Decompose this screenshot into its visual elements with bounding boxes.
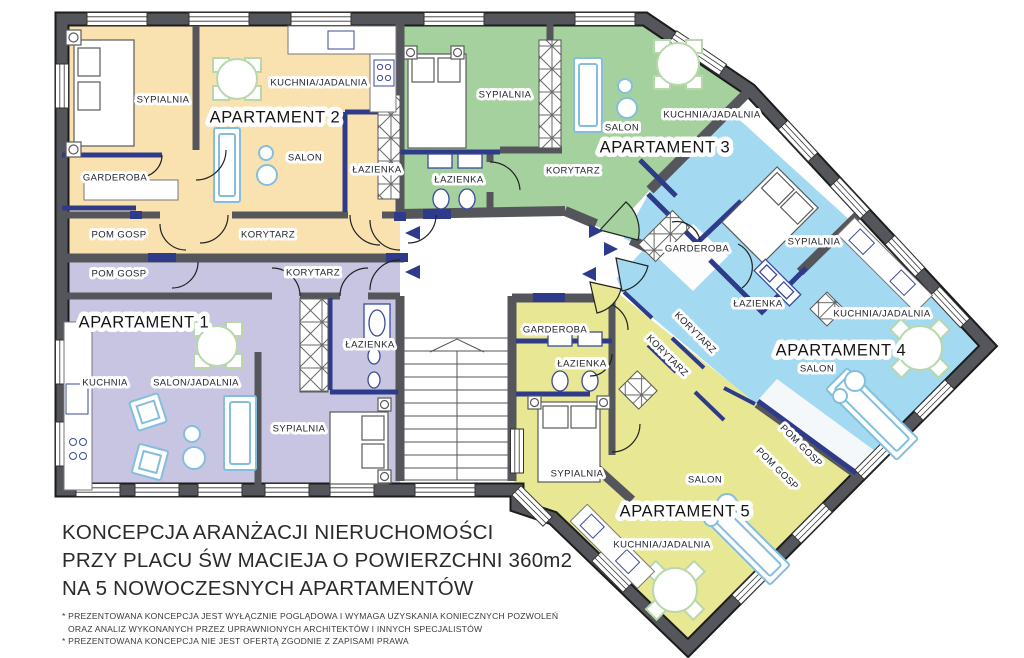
room-label: ŁAZIENKA xyxy=(733,299,782,310)
room-label: KUCHNIA/JADALNIA xyxy=(663,110,760,121)
room-label: POM GOSP xyxy=(92,230,147,241)
apt3-bed xyxy=(404,46,466,148)
plan-title-line-3: NA 5 NOWOCZESNYCH APARTAMENTÓW xyxy=(62,575,572,603)
room-label: SYPIALNIA xyxy=(273,424,326,435)
room-label: SYPIALNIA xyxy=(137,95,190,106)
apartment-title: APARTAMENT 1 xyxy=(79,313,210,331)
apartment-title: APARTAMENT 5 xyxy=(620,502,751,520)
room-label: SALON xyxy=(288,153,322,164)
plan-title-line-2: PRZY PLACU ŚW MACIEJA O POWIERZCHNI 360m… xyxy=(62,547,572,575)
room-label: KUCHNIA/JADALNIA xyxy=(270,78,367,89)
room-label: SYPIALNIA xyxy=(479,90,532,101)
room-label: POM GOSP xyxy=(92,269,147,280)
room-label: SALON xyxy=(605,123,639,134)
room-label: GARDEROBA xyxy=(83,173,148,184)
room-label: SALON/JADALNIA xyxy=(153,378,239,389)
room-label: ŁAZIENKA xyxy=(352,165,401,176)
room-label: SYPIALNIA xyxy=(551,469,604,480)
apt1-kitchen xyxy=(64,322,92,490)
apartment-title: APARTAMENT 2 xyxy=(210,108,341,126)
room-label: SALON xyxy=(800,364,834,375)
room-label: KORYTARZ xyxy=(241,230,295,241)
room-label: GARDEROBA xyxy=(665,244,730,255)
room-label: SALON xyxy=(688,475,722,486)
staircase xyxy=(403,338,511,480)
apt3-dining-table xyxy=(654,40,702,89)
footnotes: * PREZENTOWANA KONCEPCJA JEST WYŁĄCZNIE … xyxy=(62,610,558,648)
room-label: ŁAZIENKA xyxy=(345,340,394,351)
room-label: KORYTARZ xyxy=(286,268,340,279)
room-label: KUCHNIA xyxy=(82,378,128,389)
room-label: ŁAZIENKA xyxy=(434,175,483,186)
room-label: ŁAZIENKA xyxy=(557,359,606,370)
room-label: KORYTARZ xyxy=(546,166,600,177)
plan-title-line-1: KONCEPCJA ARANŻACJI NIERUCHOMOŚCI xyxy=(62,519,572,547)
apt2-dining-table xyxy=(213,58,261,100)
apartment-title: APARTAMENT 3 xyxy=(600,138,731,156)
room-label: SYPIALNIA xyxy=(788,237,841,248)
floor-plan-page: SYPIALNIAKUCHNIA/JADALNIAAPARTAMENT 2SAL… xyxy=(0,0,1024,658)
footnote-2: ORAZ ANALIZ WYKONANYCH PRZEZ UPRAWNIONYC… xyxy=(62,623,558,636)
title-block: KONCEPCJA ARANŻACJI NIERUCHOMOŚCI PRZY P… xyxy=(62,519,572,603)
room-label: GARDEROBA xyxy=(523,325,588,336)
room-label: KUCHNIA/JADALNIA xyxy=(833,309,930,320)
footnote-3: * PREZENTOWANA KONCEPCJA NIE JEST OFERTĄ… xyxy=(62,635,558,648)
room-label: KUCHNIA/JADALNIA xyxy=(613,540,710,551)
footnote-1: * PREZENTOWANA KONCEPCJA JEST WYŁĄCZNIE … xyxy=(62,610,558,623)
apt2-bed xyxy=(66,30,134,157)
apartment-title: APARTAMENT 4 xyxy=(776,341,907,359)
